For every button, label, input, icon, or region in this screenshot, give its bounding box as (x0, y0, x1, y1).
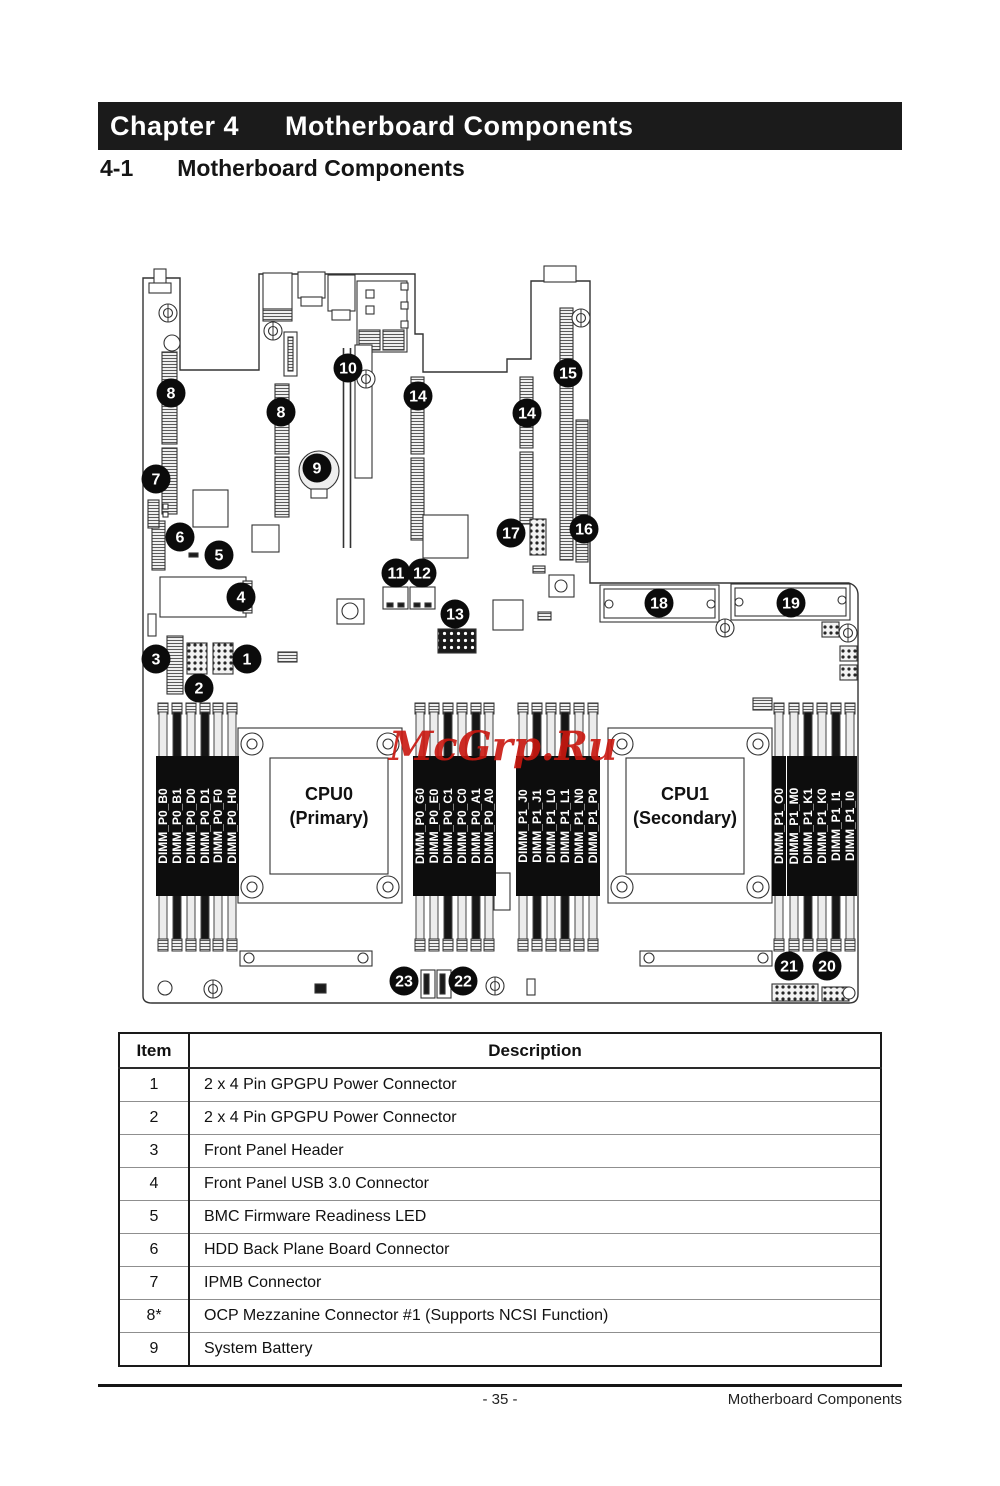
item-description: Front Panel USB 3.0 Connector (189, 1168, 881, 1201)
dimm-slot-label: DIMM_P1_K0 (815, 788, 829, 864)
svg-text:2: 2 (195, 681, 204, 698)
item-number: 7 (119, 1267, 189, 1300)
dimm-slot-label: DIMM_P1_J1 (530, 789, 544, 863)
dimm-slot-label: DIMM_P0_A1 (469, 788, 483, 864)
item-description: IPMB Connector (189, 1267, 881, 1300)
dimm-slot-label: DIMM_P0_E0 (427, 788, 441, 863)
table-row: 12 x 4 Pin GPGPU Power Connector (119, 1068, 881, 1102)
callout-19: 19 (777, 589, 806, 618)
item-number: 4 (119, 1168, 189, 1201)
svg-text:3: 3 (152, 652, 161, 669)
table-row: 5BMC Firmware Readiness LED (119, 1201, 881, 1234)
callout-1: 1 (233, 645, 262, 674)
item-number: 5 (119, 1201, 189, 1234)
callout-2: 2 (185, 674, 214, 703)
svg-text:CPU1: CPU1 (661, 784, 709, 804)
dimm-slot-label: DIMM_P0_F0 (211, 789, 225, 863)
svg-text:18: 18 (650, 596, 668, 613)
svg-text:8: 8 (277, 405, 286, 422)
callout-8: 8 (267, 398, 296, 427)
svg-text:6: 6 (176, 530, 185, 547)
dimm-slot-label: DIMM_P1_K1 (801, 788, 815, 864)
table-row: 4Front Panel USB 3.0 Connector (119, 1168, 881, 1201)
item-description: OCP Mezzanine Connector #1 (Supports NCS… (189, 1300, 881, 1333)
manual-page: Chapter 4 Motherboard Components 4-1 Mot… (0, 0, 1000, 1486)
dimm-slot-label: DIMM_P1_I1 (829, 791, 843, 861)
item-description: Front Panel Header (189, 1135, 881, 1168)
callout-7: 7 (142, 465, 171, 494)
svg-text:7: 7 (152, 472, 161, 489)
footer-rule (98, 1384, 902, 1387)
svg-text:17: 17 (502, 526, 520, 543)
svg-text:(Primary): (Primary) (289, 808, 368, 828)
svg-text:14: 14 (409, 389, 427, 406)
dimm-slot-label: DIMM_P0_A0 (482, 788, 496, 864)
svg-text:20: 20 (818, 959, 836, 976)
dimm-slot-label: DIMM_P1_O0 (772, 788, 786, 864)
callout-20: 20 (813, 952, 842, 981)
dimm-slot-label: DIMM_P1_J0 (516, 789, 530, 863)
item-description: BMC Firmware Readiness LED (189, 1201, 881, 1234)
item-number: 1 (119, 1068, 189, 1102)
svg-text:(Secondary): (Secondary) (633, 808, 737, 828)
svg-text:14: 14 (518, 406, 536, 423)
callout-23: 23 (390, 967, 419, 996)
callout-3: 3 (142, 645, 171, 674)
item-description: System Battery (189, 1333, 881, 1367)
table-row: 9System Battery (119, 1333, 881, 1367)
table-row: 7IPMB Connector (119, 1267, 881, 1300)
svg-text:21: 21 (780, 959, 798, 976)
callout-5: 5 (205, 541, 234, 570)
callout-17: 17 (497, 519, 526, 548)
svg-text:11: 11 (388, 566, 405, 583)
svg-text:8: 8 (167, 386, 176, 403)
callout-9: 9 (303, 454, 332, 483)
callout-4: 4 (227, 583, 256, 612)
dimm-slot-label: DIMM_P0_G0 (413, 788, 427, 864)
svg-text:23: 23 (395, 974, 413, 991)
item-description: 2 x 4 Pin GPGPU Power Connector (189, 1068, 881, 1102)
watermark: McGrp.Ru (387, 723, 617, 770)
table-row: 3Front Panel Header (119, 1135, 881, 1168)
item-number: 9 (119, 1333, 189, 1367)
dimm-slot-label: DIMM_P1_L1 (558, 789, 572, 863)
svg-text:15: 15 (559, 366, 577, 383)
callout-16: 16 (570, 515, 599, 544)
dimm-slot-label: DIMM_P1_N0 (572, 788, 586, 864)
dimm-slot-label: DIMM_P0_B0 (156, 788, 170, 864)
item-number: 3 (119, 1135, 189, 1168)
callout-21: 21 (775, 952, 804, 981)
callout-14: 14 (513, 399, 542, 428)
svg-text:4: 4 (237, 590, 246, 607)
callout-18: 18 (645, 589, 674, 618)
dimm-slot-label: DIMM_P1_M0 (787, 787, 801, 864)
item-number: 6 (119, 1234, 189, 1267)
callout-13: 13 (441, 600, 470, 629)
footer-chapter-name: Motherboard Components (728, 1391, 902, 1408)
dimm-slot-label: DIMM_P0_C1 (441, 788, 455, 864)
dimm-slot-label: DIMM_P1_I0 (843, 791, 857, 861)
dimm-slot-label: DIMM_P0_D0 (184, 788, 198, 864)
dimm-slot-label: DIMM_P1_P0 (586, 788, 600, 863)
callout-14: 14 (404, 382, 433, 411)
callout-11: 11 (382, 559, 411, 588)
svg-text:19: 19 (782, 596, 800, 613)
dimm-slot-label: DIMM_P0_H0 (225, 788, 239, 864)
item-description: 2 x 4 Pin GPGPU Power Connector (189, 1102, 881, 1135)
table-header: ItemDescription (119, 1033, 881, 1068)
components-table: ItemDescription 12 x 4 Pin GPGPU Power C… (118, 1032, 882, 1367)
callout-12: 12 (408, 559, 437, 588)
column-header: Item (119, 1033, 189, 1068)
table-row: 6HDD Back Plane Board Connector (119, 1234, 881, 1267)
callout-10: 10 (334, 354, 363, 383)
dimm-slot-label: DIMM_P0_B1 (170, 788, 184, 864)
item-number: 8* (119, 1300, 189, 1333)
callout-6: 6 (166, 523, 195, 552)
components-table-wrap: ItemDescription 12 x 4 Pin GPGPU Power C… (118, 1032, 882, 1367)
svg-text:9: 9 (313, 461, 322, 478)
callout-22: 22 (449, 967, 478, 996)
callout-8: 8 (157, 379, 186, 408)
svg-text:5: 5 (215, 548, 224, 565)
dimm-slot-label: DIMM_P0_D1 (198, 788, 212, 864)
svg-text:13: 13 (446, 607, 464, 624)
table-row: 22 x 4 Pin GPGPU Power Connector (119, 1102, 881, 1135)
svg-text:10: 10 (339, 361, 357, 378)
dimm-slot-label: DIMM_P0_C0 (455, 788, 469, 864)
svg-text:12: 12 (413, 566, 431, 583)
callout-15: 15 (554, 359, 583, 388)
svg-text:16: 16 (575, 522, 593, 539)
dimm-slot-label: DIMM_P1_L0 (544, 789, 558, 863)
item-number: 2 (119, 1102, 189, 1135)
svg-text:CPU0: CPU0 (305, 784, 353, 804)
column-header: Description (189, 1033, 881, 1068)
svg-text:22: 22 (454, 974, 472, 991)
item-description: HDD Back Plane Board Connector (189, 1234, 881, 1267)
table-row: 8*OCP Mezzanine Connector #1 (Supports N… (119, 1300, 881, 1333)
svg-text:1: 1 (243, 652, 252, 669)
